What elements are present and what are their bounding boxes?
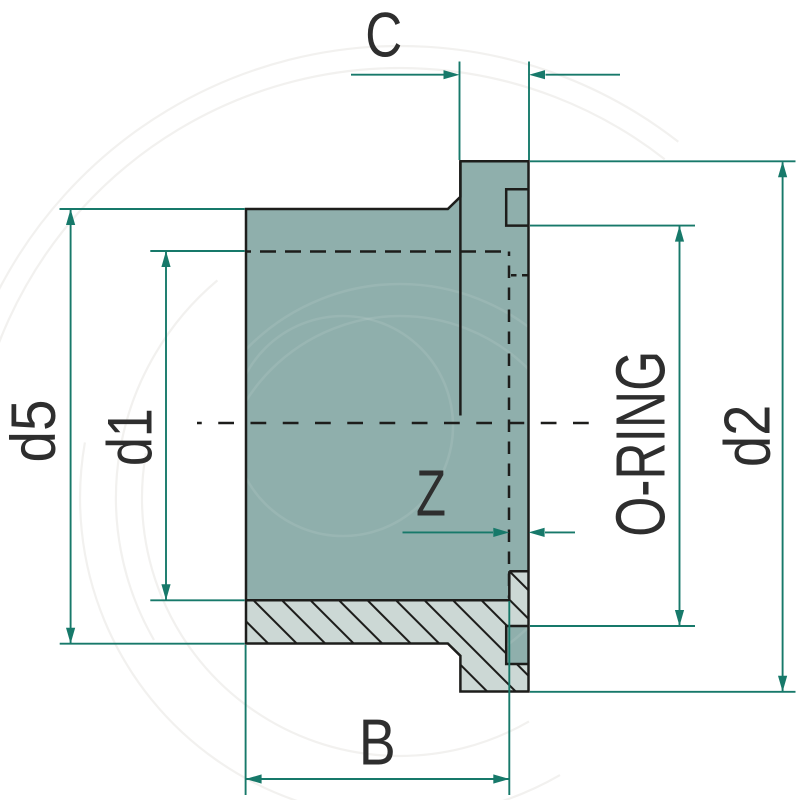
- svg-text:O-RING: O-RING: [602, 351, 680, 537]
- svg-text:d1: d1: [96, 408, 166, 466]
- svg-text:d2: d2: [712, 405, 784, 468]
- svg-text:C: C: [365, 1, 402, 71]
- svg-text:B: B: [359, 706, 396, 779]
- svg-text:d5: d5: [0, 400, 69, 463]
- svg-text:Z: Z: [416, 456, 446, 529]
